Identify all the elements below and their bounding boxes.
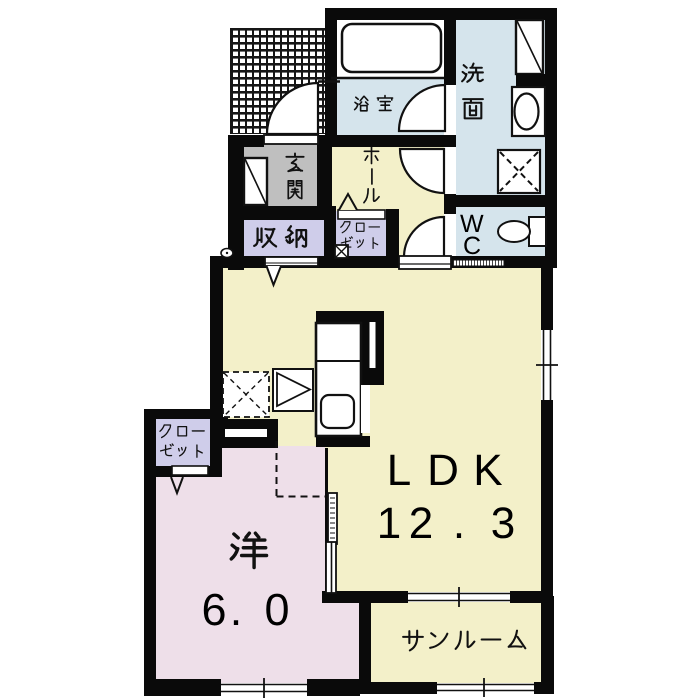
svg-text:K: K <box>473 446 502 495</box>
svg-text:2: 2 <box>409 499 434 548</box>
svg-text:D: D <box>427 446 459 495</box>
svg-text:.: . <box>453 499 465 548</box>
svg-text:0: 0 <box>264 584 289 635</box>
svg-text:.: . <box>230 584 243 635</box>
svg-text:L: L <box>387 446 412 495</box>
svg-text:3: 3 <box>491 499 516 548</box>
svg-text:6: 6 <box>201 584 226 635</box>
svg-text:C: C <box>463 232 481 260</box>
svg-text:1: 1 <box>377 499 402 548</box>
